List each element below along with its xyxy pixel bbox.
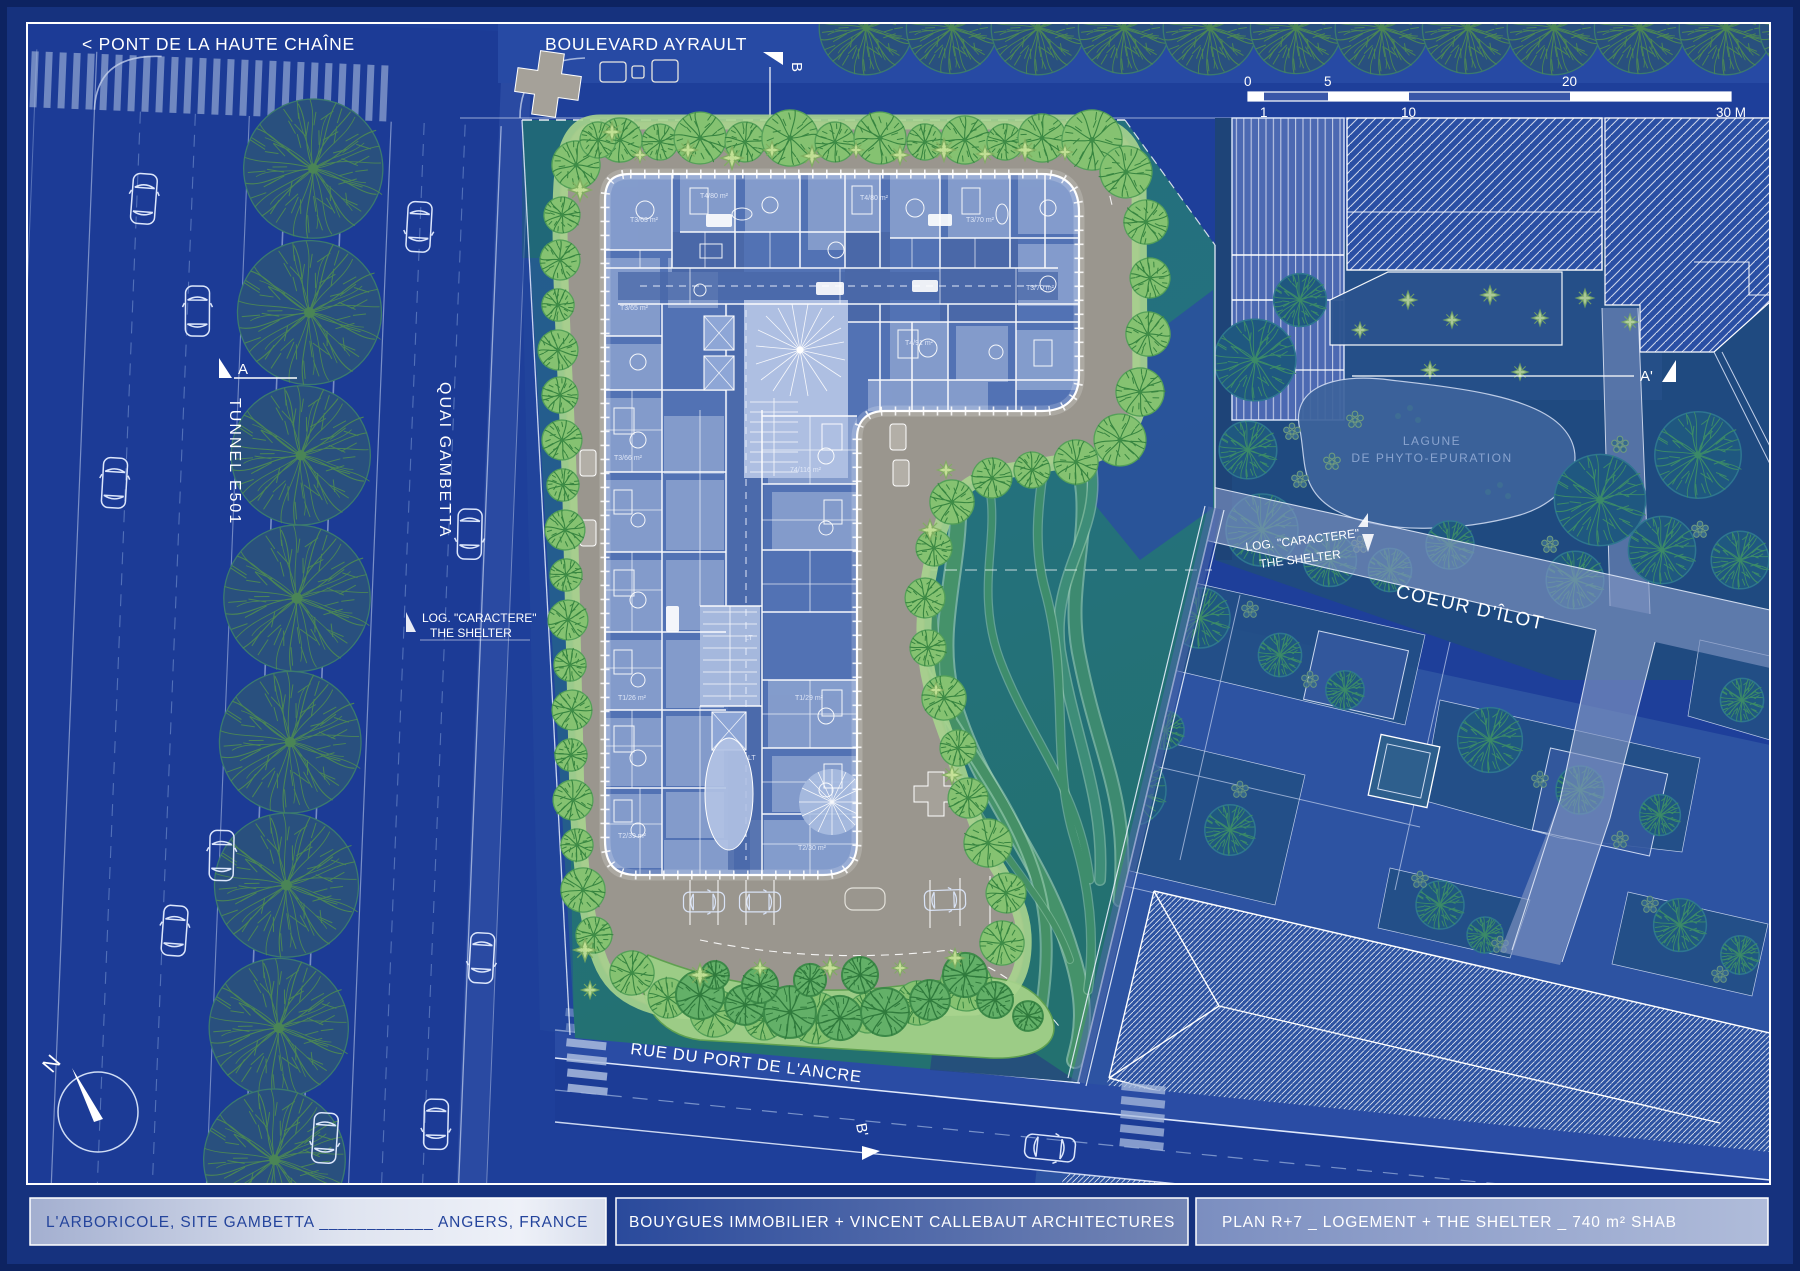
svg-text:PLAN R+7 _ LOGEMENT + THE SHE: PLAN R+7 _ LOGEMENT + THE SHELTER _ 740 … [1222, 1214, 1677, 1231]
svg-text:LT: LT [748, 755, 756, 762]
svg-text:74/116 m²: 74/116 m² [790, 467, 822, 474]
svg-text:0: 0 [1244, 74, 1252, 89]
svg-text:< PONT DE LA HAUTE CHAÎNE: < PONT DE LA HAUTE CHAÎNE [82, 34, 355, 54]
svg-text:BOULEVARD AYRAULT: BOULEVARD AYRAULT [545, 34, 747, 54]
svg-text:QUAI GAMBETTA: QUAI GAMBETTA [436, 382, 453, 538]
svg-text:T1/29 m²: T1/29 m² [795, 695, 824, 702]
svg-text:5: 5 [1324, 74, 1332, 89]
svg-text:LAGUNE: LAGUNE [1403, 434, 1461, 448]
svg-text:T4/80 m²: T4/80 m² [700, 193, 729, 200]
svg-text:T3/70 m²: T3/70 m² [966, 217, 995, 224]
svg-text:T3/66 m²: T3/66 m² [614, 455, 643, 462]
svg-text:A: A [238, 361, 248, 378]
svg-text:L'ARBORICOLE, SITE GAMBETTA __: L'ARBORICOLE, SITE GAMBETTA ____________… [46, 1214, 588, 1231]
svg-text:T3/63 m²: T3/63 m² [630, 217, 659, 224]
svg-text:LT: LT [745, 635, 753, 642]
svg-text:T3/70 m²: T3/70 m² [1026, 285, 1055, 292]
svg-text:TUNNEL E501: TUNNEL E501 [226, 398, 243, 525]
svg-text:LOG. "CARACTERE": LOG. "CARACTERE" [422, 611, 537, 625]
svg-text:T2/39 m²: T2/39 m² [618, 833, 647, 840]
svg-text:T4/91 m²: T4/91 m² [905, 340, 934, 347]
svg-text:B: B [788, 62, 805, 72]
svg-text:DE PHYTO-EPURATION: DE PHYTO-EPURATION [1351, 451, 1512, 465]
svg-text:20: 20 [1562, 74, 1577, 89]
svg-text:THE SHELTER: THE SHELTER [430, 626, 512, 640]
svg-text:A': A' [1640, 368, 1653, 385]
svg-text:T3/65 m²: T3/65 m² [620, 305, 649, 312]
svg-text:T4/80 m²: T4/80 m² [860, 195, 889, 202]
svg-text:BOUYGUES IMMOBILIER + VINCENT: BOUYGUES IMMOBILIER + VINCENT CALLEBAUT … [629, 1214, 1175, 1231]
svg-text:T1/26 m²: T1/26 m² [618, 695, 647, 702]
svg-text:T2/30 m²: T2/30 m² [798, 845, 827, 852]
